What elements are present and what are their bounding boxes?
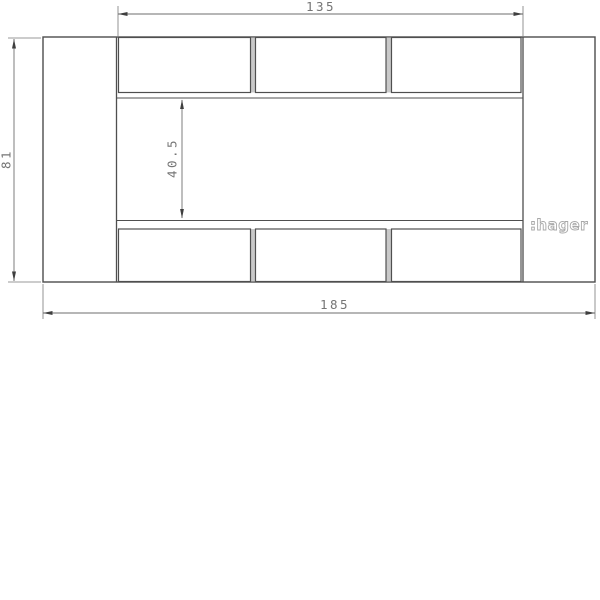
dimension-label-opening-height: 40.5 xyxy=(165,138,180,178)
drawing-canvas: 135 81 40.5 185 :hager xyxy=(0,0,600,600)
arrowhead-bottom xyxy=(180,209,184,219)
module-gap xyxy=(386,229,392,282)
dimension-overall-height: 81 xyxy=(0,38,41,282)
dimension-opening-height: 40.5 xyxy=(165,100,184,219)
arrowhead-right xyxy=(514,12,524,16)
technical-drawing: 135 81 40.5 185 :hager xyxy=(0,0,600,600)
arrowhead-left xyxy=(118,12,128,16)
module-cell-top-1 xyxy=(119,38,251,93)
dimension-label-opening-width: 135 xyxy=(306,0,336,14)
module-cell-bottom-1 xyxy=(119,229,251,282)
dimension-label-overall-width: 185 xyxy=(320,297,350,312)
arrowhead-bottom xyxy=(12,272,16,282)
arrowhead-top xyxy=(180,100,184,110)
module-cell-bottom-3 xyxy=(392,229,522,282)
arrowhead-right xyxy=(586,311,596,315)
product-outline xyxy=(43,37,595,282)
module-cell-top-3 xyxy=(392,38,522,93)
arrowhead-top xyxy=(12,39,16,49)
module-gap xyxy=(386,38,392,93)
dimension-opening-width: 135 xyxy=(118,0,523,36)
dimension-label-overall-height: 81 xyxy=(0,149,14,169)
module-cell-top-2 xyxy=(256,38,387,93)
module-cell-bottom-2 xyxy=(256,229,387,282)
hager-logo: :hager xyxy=(530,216,588,234)
dimension-overall-width: 185 xyxy=(43,284,595,319)
arrowhead-left xyxy=(43,311,53,315)
